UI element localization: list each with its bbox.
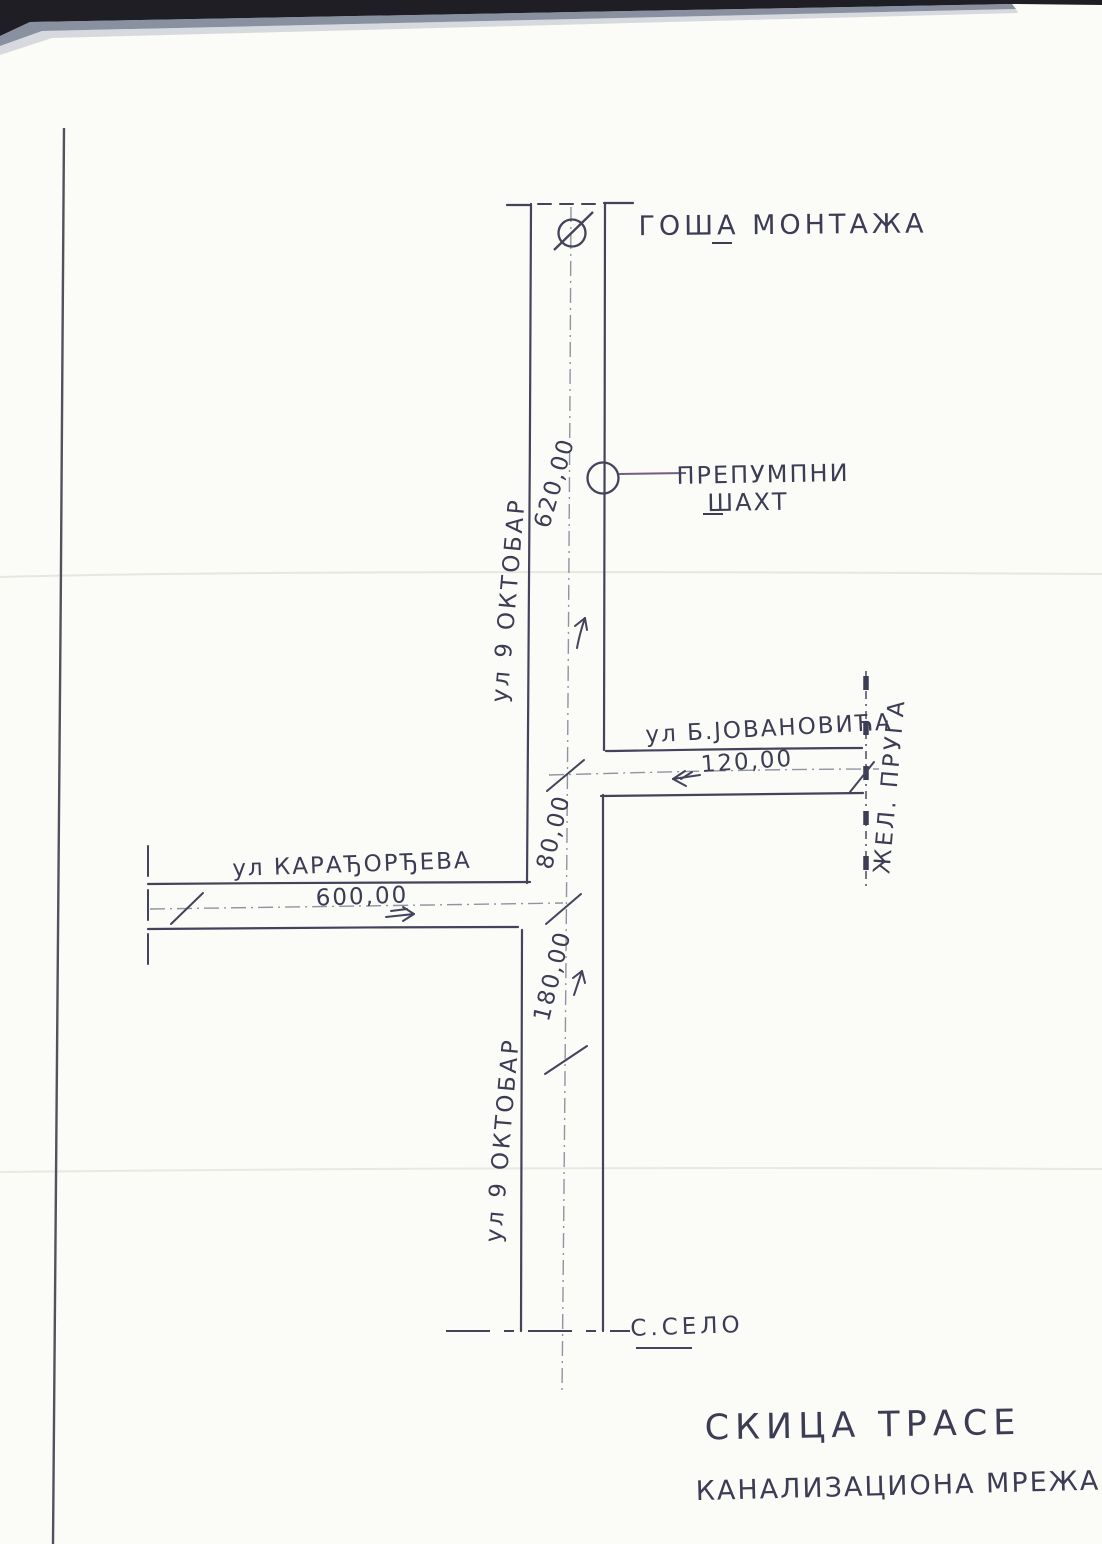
scan-top-edge — [0, 0, 1102, 55]
drawing-title-line1: СКИЦА ТРАСЕ — [704, 1405, 1021, 1447]
up-arrow-oktobar-upper — [575, 618, 587, 648]
label-pump-shaft-line2: ШАХТ — [707, 490, 789, 517]
crease-line-lower — [0, 1168, 1102, 1172]
crease-line-upper — [0, 572, 1102, 577]
oktobar-right-line-upper — [604, 203, 605, 750]
route-sketch-drawing — [0, 0, 1102, 1544]
up-arrow-oktobar-lower — [573, 971, 585, 995]
tick-railway-crossing — [850, 762, 874, 792]
scanned-page: ГОША МОНТАЖА ПРЕПУМПНИ ШАХТ ул 9 ОКТОБАР… — [0, 0, 1102, 1544]
label-factory-gosa-montaza: ГОША МОНТАЖА — [638, 211, 927, 242]
label-pump-shaft-line1: ПРЕПУМПНИ — [676, 461, 850, 489]
pipe-centerlines — [150, 207, 879, 1392]
outlet-manhole-symbol — [554, 212, 593, 250]
karadjordjeva-bottom-line — [148, 927, 518, 929]
jovanovica-bottom-line — [601, 793, 863, 796]
label-village-selo: С.СЕЛО — [630, 1313, 744, 1341]
left-arrow-jovanovica — [673, 771, 700, 786]
scan-left-edge-line — [53, 128, 64, 1544]
pump-shaft-symbol — [588, 463, 619, 494]
karadjordjeva-top-line — [148, 882, 530, 884]
paper-creases — [0, 572, 1102, 1172]
tick-oktobar-lower — [545, 1046, 587, 1074]
oktobar-left-line-upper — [527, 204, 531, 883]
oktobar-left-line-lower — [521, 930, 522, 1331]
flow-arrows — [386, 618, 700, 995]
right-arrow-karadjordjeva — [386, 907, 414, 921]
tick-karadjordjeva-junction — [546, 894, 581, 924]
measurement-600: 600,00 — [315, 883, 408, 910]
